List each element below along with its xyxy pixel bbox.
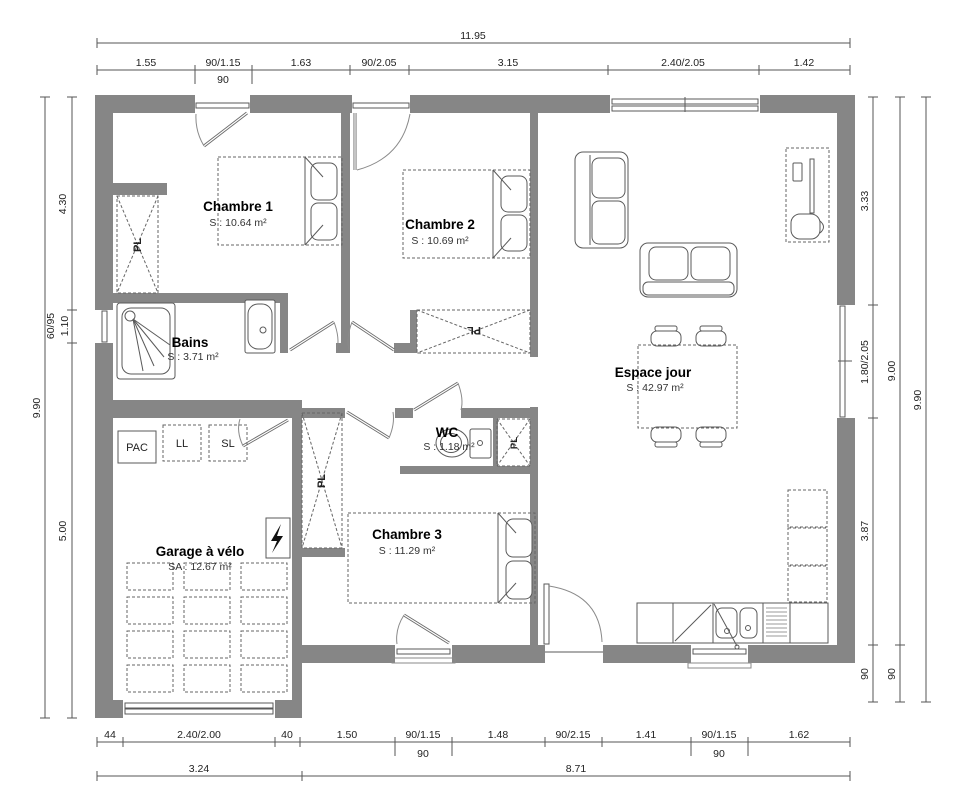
closet-label-c3: PL xyxy=(316,474,328,488)
dim-text: 90 xyxy=(217,74,229,86)
dim-text: 3.33 xyxy=(859,191,871,212)
wall-c2-espace xyxy=(530,113,538,357)
dim-text: 1.80/2.05 xyxy=(859,340,871,384)
wall-garage-right xyxy=(292,418,302,718)
wall-c2pl-stub xyxy=(410,310,417,353)
dim-text: 90/2.15 xyxy=(555,729,590,741)
dim-text: 90 xyxy=(417,748,429,760)
desk-workstation xyxy=(786,148,829,242)
dim-top-chain: 1.55 90/1.15 1.63 90/2.05 3.15 2.40/2.05… xyxy=(97,57,850,86)
label-espace-jour: Espace jour xyxy=(615,365,692,380)
closet-label-wc: PL xyxy=(509,437,520,449)
room-labels: Chambre 1 S : 10.64 m² Chambre 2 S : 10.… xyxy=(126,199,692,573)
wall-wc-top-left xyxy=(395,408,413,418)
door-window-chambre3 xyxy=(392,615,455,663)
dim-text: 3.15 xyxy=(498,57,519,69)
window-espace-right xyxy=(837,305,855,418)
dim-text: 44 xyxy=(104,729,116,741)
area-chambre3: S : 11.29 m² xyxy=(379,545,436,557)
wall-left xyxy=(95,113,113,718)
wall-c1pl-stub xyxy=(113,183,167,195)
window-chambre1 xyxy=(195,95,250,146)
dim-text: 1.42 xyxy=(794,57,815,69)
window-bains xyxy=(95,310,113,343)
dim-text: 3.24 xyxy=(189,763,210,775)
dim-text: 40 xyxy=(281,729,293,741)
area-garage: SA : 12.67 m² xyxy=(168,561,232,573)
kitchen-counter xyxy=(637,490,828,649)
dim-right: 3.33 1.80/2.05 3.87 90 9.00 90 9.90 xyxy=(859,97,931,702)
door-chambre2 xyxy=(348,322,394,350)
label-pac: PAC xyxy=(126,442,148,454)
wall-bains-right xyxy=(280,293,288,353)
dim-text: 1.62 xyxy=(789,729,810,741)
dim-text: 9.90 xyxy=(912,390,924,411)
dim-bottom-chain: 44 2.40/2.00 40 1.50 90/1.15 1.48 90/2.1… xyxy=(97,729,850,760)
label-sl: SL xyxy=(221,438,234,450)
dim-text: 90/1.15 xyxy=(205,57,240,69)
label-wc: WC xyxy=(436,425,459,440)
dim-text: 1.48 xyxy=(488,729,509,741)
floor-plan: Chambre 1 S : 10.64 m² Chambre 2 S : 10.… xyxy=(0,0,960,805)
dim-text: 8.71 xyxy=(566,763,587,775)
dim-text: 90 xyxy=(886,668,898,680)
dim-text: 4.30 xyxy=(57,194,69,215)
door-garage xyxy=(239,419,288,446)
label-chambre2: Chambre 2 xyxy=(405,217,475,232)
window-chambre2 xyxy=(352,95,410,170)
dim-text: 90/2.05 xyxy=(361,57,396,69)
dim-text: 1.41 xyxy=(636,729,657,741)
dim-text: 11.95 xyxy=(460,30,486,42)
dim-text: 9.00 xyxy=(886,361,898,382)
dim-text: 1.55 xyxy=(136,57,157,69)
wall-wc-bottom xyxy=(400,466,538,474)
label-bains: Bains xyxy=(172,335,209,350)
dim-text: 90/1.15 xyxy=(405,729,440,741)
area-chambre2: S : 10.69 m² xyxy=(411,235,469,247)
label-garage: Garage à vélo xyxy=(156,544,245,559)
electrical-panel xyxy=(266,518,290,558)
area-bains: S : 3.71 m² xyxy=(167,351,219,363)
wall-bains-garage xyxy=(113,400,302,418)
door-chambre3 xyxy=(347,412,394,438)
door-wc xyxy=(414,383,462,410)
label-chambre3: Chambre 3 xyxy=(372,527,442,542)
bike-rack-grid xyxy=(127,563,287,692)
label-chambre1: Chambre 1 xyxy=(203,199,273,214)
dim-text: 2.40/2.05 xyxy=(661,57,705,69)
dim-text: 90 xyxy=(859,668,871,680)
label-ll: LL xyxy=(176,438,188,450)
entry-door xyxy=(544,584,603,663)
dim-text: 2.40/2.00 xyxy=(177,729,221,741)
dim-text: 90 xyxy=(713,748,725,760)
dim-text: 5.00 xyxy=(57,521,69,542)
shower xyxy=(117,303,175,379)
dim-text: 1.10 xyxy=(59,316,71,337)
dim-top-total: 11.95 xyxy=(97,30,850,48)
dim-text: 1.63 xyxy=(291,57,312,69)
garage-door xyxy=(123,700,275,718)
sofa-corner xyxy=(575,152,628,248)
dim-text: 90/1.15 xyxy=(701,729,736,741)
dim-text: 3.87 xyxy=(859,521,871,542)
washbasin xyxy=(245,300,275,353)
window-kitchen xyxy=(688,645,751,668)
sofa-two-seat xyxy=(640,243,737,297)
area-wc: S : 1.18 m² xyxy=(423,441,475,453)
wall-wc-top-right xyxy=(461,408,538,418)
window-espace-bay xyxy=(610,95,760,113)
closet-label-c2: PL xyxy=(467,324,481,336)
area-chambre1: S : 10.64 m² xyxy=(209,217,267,229)
area-espace-jour: S : 42.97 m² xyxy=(626,382,684,394)
dim-text: 9.90 xyxy=(31,398,43,419)
dim-text: 60/95 xyxy=(45,313,57,339)
dim-text: 1.50 xyxy=(337,729,358,741)
wall-c3pl-stub xyxy=(297,548,345,557)
dim-left: 4.30 60/95 1.10 5.00 9.90 xyxy=(31,97,77,718)
dim-bottom-totals: 3.24 8.71 xyxy=(97,763,850,781)
closet-label-c1: PL xyxy=(132,238,144,252)
door-chambre1 xyxy=(290,322,338,350)
